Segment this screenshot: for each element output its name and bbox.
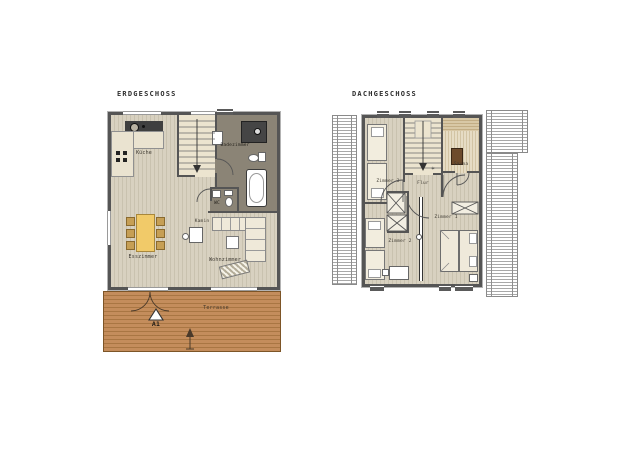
north-arrow-icon <box>186 328 194 349</box>
dg-building: Zimmer 3 Flur Sauna Zimmer 1 Zimmer 2 ✶ <box>362 115 482 287</box>
floorplan-canvas: ERDGESCHOSS <box>0 0 640 452</box>
dg-roof-window <box>399 111 411 118</box>
erdgeschoss-title: ERDGESCHOSS <box>117 90 177 98</box>
zimmer1-door-arc <box>443 175 465 197</box>
zimmer2-door-arc <box>407 196 429 218</box>
roof-rail <box>337 116 338 284</box>
roof-rail <box>491 111 492 152</box>
roof-panel-right-upper <box>486 110 528 153</box>
dg-roof-window <box>370 284 384 291</box>
terrace-door-arc-left <box>131 292 150 311</box>
dg-roof-window <box>455 284 473 291</box>
roof-rail <box>351 116 352 284</box>
eg-linework <box>111 115 277 287</box>
terrace-linework <box>104 292 282 353</box>
dg-linework <box>365 118 479 284</box>
terrasse-label: Terrasse <box>194 306 238 312</box>
dachgeschoss-title: DACHGESCHOSS <box>352 90 417 98</box>
section-marker-a1-triangle-icon <box>149 309 163 320</box>
roof-rail <box>512 154 513 296</box>
roof-panel-right-lower <box>486 153 518 297</box>
terrace: Terrasse A1 <box>103 291 281 352</box>
dg-roof-window <box>453 111 465 118</box>
dg-roof-window <box>377 111 389 118</box>
terrace-door-arc-right <box>150 292 169 311</box>
eg-building: Küche Badezimmer WC Kamin <box>108 112 280 290</box>
eg-bath-door-arc <box>217 159 233 175</box>
eg-wc-door-arc <box>197 189 210 202</box>
dg-roof-window <box>439 284 451 291</box>
dg-stair-arrow-icon <box>419 163 427 171</box>
dg-roof-window <box>427 111 439 118</box>
wardrobe-group <box>387 193 478 231</box>
dg-interior: Zimmer 3 Flur Sauna Zimmer 1 Zimmer 2 ✶ <box>365 118 479 284</box>
eg-interior: Küche Badezimmer WC Kamin <box>111 115 277 287</box>
section-marker-a1-label: A1 <box>148 321 164 328</box>
roof-rail <box>491 154 492 296</box>
roof-panel-left <box>332 115 357 285</box>
roof-rail <box>522 111 523 152</box>
bed-fold-lines <box>440 230 449 272</box>
